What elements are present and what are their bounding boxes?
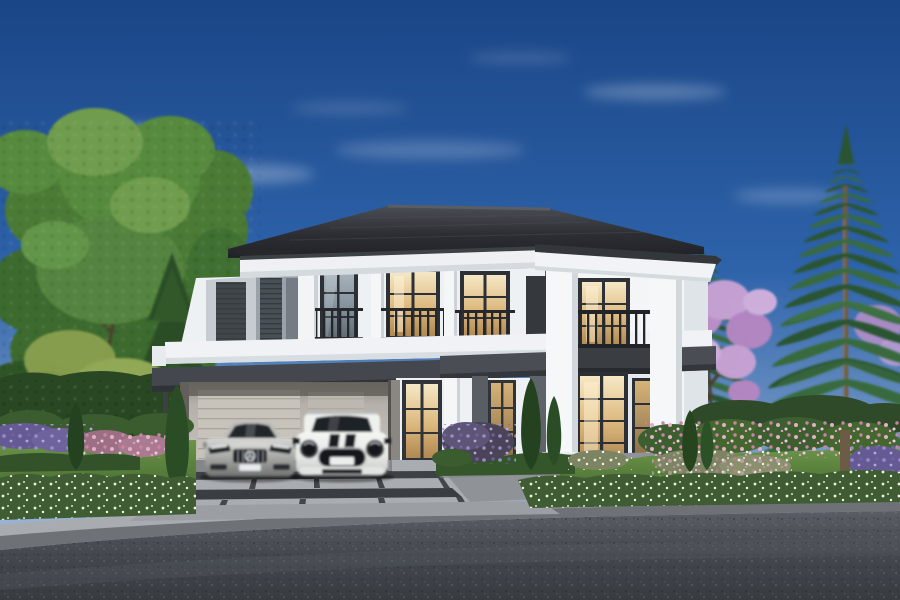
carport-roof-corner [152,346,166,366]
entrance-flower-bed [568,450,632,470]
white-suv [290,413,394,483]
flower-hedge-left [0,473,196,520]
rendered-photo: Photorealistic exterior rendering of a l… [0,0,900,600]
purple-shrub [432,422,516,467]
wing-balcony-railing [570,310,660,348]
house-render-canvas [0,0,900,600]
louver-window [286,278,300,342]
ground-window-1 [402,380,442,462]
pink-flower-bed [77,430,172,458]
